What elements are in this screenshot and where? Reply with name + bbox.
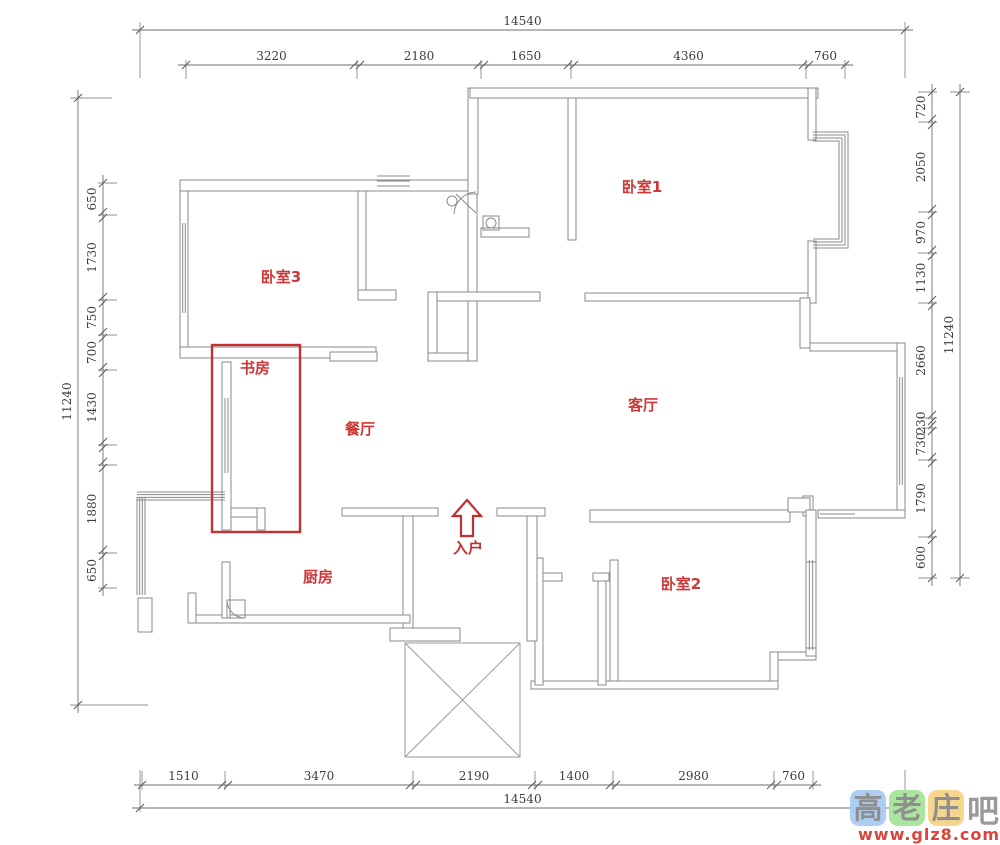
dim-label: 2190: [459, 769, 490, 783]
wall: [808, 241, 816, 303]
dim-label: 600: [914, 546, 928, 569]
wall: [468, 194, 477, 361]
wall: [342, 508, 438, 516]
dim-label: 11240: [60, 382, 74, 420]
wall: [257, 508, 265, 530]
dim-label: 650: [85, 559, 99, 582]
room-label: 客厅: [627, 396, 658, 414]
dim-label: 1730: [85, 242, 99, 273]
dim-label: 1650: [511, 49, 542, 63]
wall: [481, 228, 529, 237]
watermark-char: 庄: [928, 790, 964, 826]
dim-label: 4360: [673, 49, 704, 63]
wall: [585, 293, 808, 301]
fixture-circle: [486, 218, 496, 228]
fixture-circle: [447, 196, 457, 206]
dim-label: 1510: [168, 769, 199, 783]
wall: [180, 191, 188, 357]
dim-label: 1130: [914, 263, 928, 294]
wall: [138, 598, 152, 632]
wall: [531, 681, 778, 689]
wall: [358, 290, 396, 300]
entrance-label: 入户: [453, 539, 483, 557]
wall: [180, 180, 475, 191]
dim-label: 700: [85, 341, 99, 364]
wall: [568, 98, 576, 240]
wall: [598, 575, 606, 685]
wall: [358, 191, 366, 292]
wall: [222, 362, 231, 530]
wall: [897, 343, 905, 518]
watermark-char: 高: [850, 790, 886, 826]
wall: [390, 628, 460, 641]
dim-label: 2180: [404, 49, 435, 63]
room-label: 卧室2: [661, 575, 701, 593]
wall: [806, 648, 816, 656]
floor-plan-page: 1454032202180165043607601510347021901400…: [0, 0, 1000, 845]
wall: [437, 292, 540, 301]
watermark-char: 老: [889, 790, 925, 826]
wall: [470, 88, 818, 98]
room-label: 书房: [240, 359, 270, 377]
dim-label: 1880: [85, 494, 99, 525]
dim-label: 3220: [256, 49, 287, 63]
dim-label: 720: [914, 96, 928, 119]
wall: [222, 562, 230, 618]
watermark-url: www.glz8.com: [858, 825, 1000, 844]
wall: [800, 298, 810, 348]
dim-label: 14540: [503, 792, 541, 806]
room-label: 卧室1: [622, 178, 662, 196]
wall: [806, 510, 816, 562]
dim-label: 2660: [914, 345, 928, 376]
dim-label: 14540: [503, 14, 541, 28]
wall: [810, 343, 905, 351]
dim-label: 2050: [914, 152, 928, 183]
watermark: 高老庄吧 www.glz8.com: [850, 786, 1000, 844]
wall: [188, 593, 196, 623]
dim-label: 970: [914, 221, 928, 244]
dim-label: 750: [85, 306, 99, 329]
bay-window: [813, 138, 842, 242]
bay-window: [813, 135, 845, 245]
wall: [590, 510, 790, 522]
wall: [428, 292, 437, 361]
dim-label: 650: [85, 188, 99, 211]
bay-window: [813, 141, 839, 239]
entrance-arrow: [453, 500, 481, 536]
wall: [593, 573, 609, 581]
bay-window: [813, 132, 848, 248]
room-label: 卧室3: [261, 268, 301, 286]
dim-label: 2980: [678, 769, 709, 783]
dim-label: 1790: [914, 483, 928, 514]
dim-label: 1400: [559, 769, 590, 783]
room-label: 餐厅: [345, 420, 375, 438]
wall: [330, 352, 377, 361]
dim-label: 760: [782, 769, 805, 783]
room-label: 厨房: [303, 568, 333, 586]
wall: [610, 560, 618, 681]
floor-plan-svg: 1454032202180165043607601510347021901400…: [0, 0, 1000, 845]
dim-label: 730: [914, 433, 928, 456]
dim-label: 1430: [85, 392, 99, 423]
wall: [497, 508, 545, 516]
dim-label: 3470: [304, 769, 335, 783]
dim-label: 760: [814, 49, 837, 63]
dim-label: 11240: [942, 316, 956, 354]
dim-label: 230: [914, 412, 928, 435]
wall: [527, 516, 537, 641]
wall: [468, 88, 478, 194]
